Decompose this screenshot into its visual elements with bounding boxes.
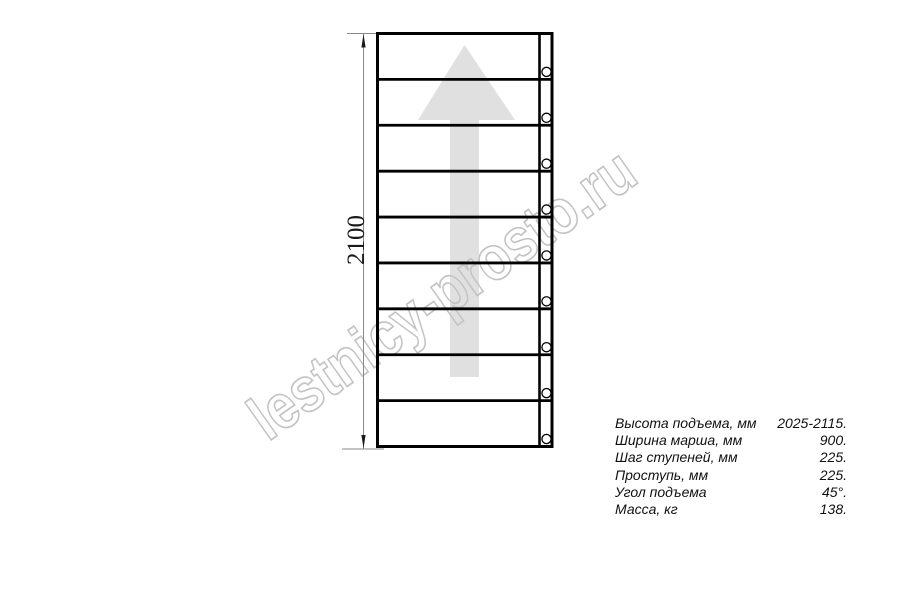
watermark-text: lestnicy-prosto.ru — [236, 135, 649, 453]
spec-label: Ширина марша, мм — [615, 432, 742, 449]
screw-icon — [542, 434, 551, 443]
screw-holes — [542, 67, 551, 443]
dimension-arrowhead-up — [361, 34, 365, 48]
spec-row-tread: Проступь, мм 225. — [615, 467, 847, 484]
spec-label: Масса, кг — [615, 501, 678, 518]
spec-row-step: Шаг ступеней, мм 225. — [615, 449, 847, 466]
dimension-arrowhead-down — [361, 435, 365, 449]
dimension-label: 2100 — [343, 215, 370, 265]
spec-value: 225. — [820, 467, 847, 484]
spec-label: Шаг ступеней, мм — [615, 449, 738, 466]
screw-icon — [542, 251, 551, 260]
spec-value: 225. — [820, 449, 847, 466]
spec-row-width: Ширина марша, мм 900. — [615, 432, 847, 449]
screw-icon — [542, 205, 551, 214]
screw-icon — [542, 113, 551, 122]
spec-value: 45°. — [822, 484, 847, 501]
spec-label: Проступь, мм — [615, 467, 708, 484]
spec-label: Высота подъема, мм — [615, 415, 757, 432]
screw-icon — [542, 67, 551, 76]
spec-value: 900. — [820, 432, 847, 449]
spec-label: Угол подъема — [615, 484, 707, 501]
spec-row-height: Высота подъема, мм 2025-2115. — [615, 415, 847, 432]
spec-row-mass: Масса, кг 138. — [615, 501, 847, 518]
screw-icon — [542, 343, 551, 352]
spec-table: Высота подъема, мм 2025-2115. Ширина мар… — [615, 415, 847, 518]
spec-row-angle: Угол подъема 45°. — [615, 484, 847, 501]
screw-icon — [542, 389, 551, 398]
spec-value: 2025-2115. — [777, 415, 847, 432]
screw-icon — [542, 297, 551, 306]
spec-value: 138. — [820, 501, 847, 518]
screw-icon — [542, 159, 551, 168]
